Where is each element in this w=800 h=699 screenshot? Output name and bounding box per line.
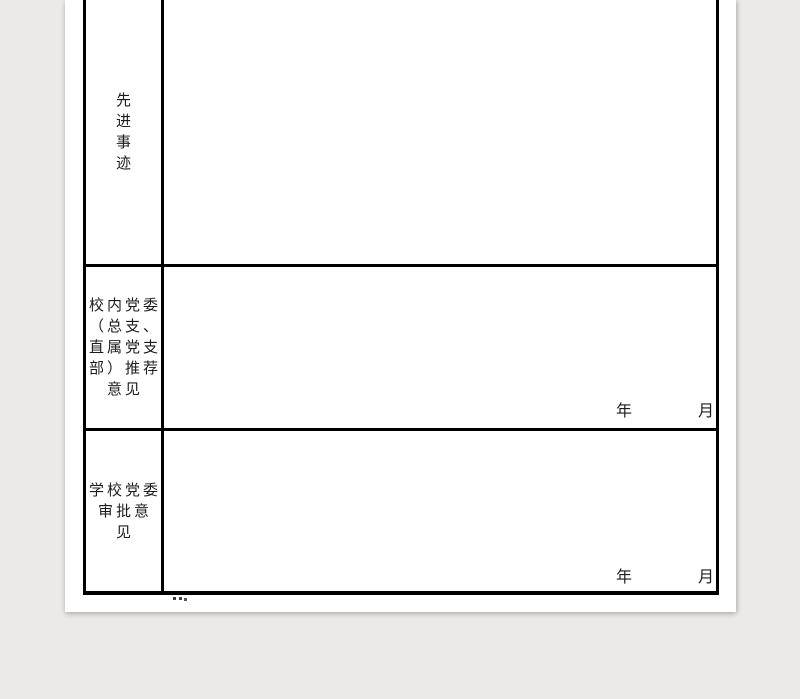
branch-recommendation-label-cell: 校内党委 （总支、 直属党支 部）推荐 意见 [86, 267, 164, 428]
label-char: 迹 [116, 153, 131, 174]
label-line: 校内党委 [89, 295, 161, 316]
label-line: 审批意 [98, 501, 152, 522]
date-line: 年月 [616, 563, 714, 587]
date-line: 年月 [616, 397, 714, 421]
label-line: 见 [116, 522, 134, 543]
branch-recommendation-input-area[interactable]: 年月 [164, 267, 716, 428]
school-approval-label-cell: 学校党委 审批意 见 [86, 431, 164, 591]
label-line: 学校党委 [89, 480, 161, 501]
advanced-deeds-input-area[interactable] [164, 0, 716, 264]
row-branch-recommendation: 校内党委 （总支、 直属党支 部）推荐 意见 年月 [86, 264, 716, 428]
label-line: 意见 [107, 379, 143, 400]
month-label: 月 [698, 401, 714, 420]
row-school-committee-approval: 学校党委 审批意 见 年月 [86, 428, 716, 591]
label-char: 进 [116, 111, 131, 132]
year-label: 年 [616, 401, 632, 420]
clipped-text-fragment [173, 597, 176, 600]
label-char: 先 [116, 90, 131, 111]
advanced-deeds-label-cell: 先 进 事 迹 [86, 0, 164, 264]
preview-background: 先 进 事 迹 校内党委 （总支、 直属党支 部）推荐 意见 [0, 0, 800, 699]
school-approval-input-area[interactable]: 年月 [164, 431, 716, 591]
month-label: 月 [698, 567, 714, 586]
label-char: 事 [116, 132, 131, 153]
label-line: 直属党支 [89, 337, 161, 358]
label-line: （总支、 [89, 316, 161, 337]
label-line: 部）推荐 [89, 358, 161, 379]
form-table: 先 进 事 迹 校内党委 （总支、 直属党支 部）推荐 意见 [83, 0, 719, 595]
year-label: 年 [616, 567, 632, 586]
row-advanced-deeds: 先 进 事 迹 [86, 0, 716, 264]
document-page: 先 进 事 迹 校内党委 （总支、 直属党支 部）推荐 意见 [65, 0, 736, 612]
